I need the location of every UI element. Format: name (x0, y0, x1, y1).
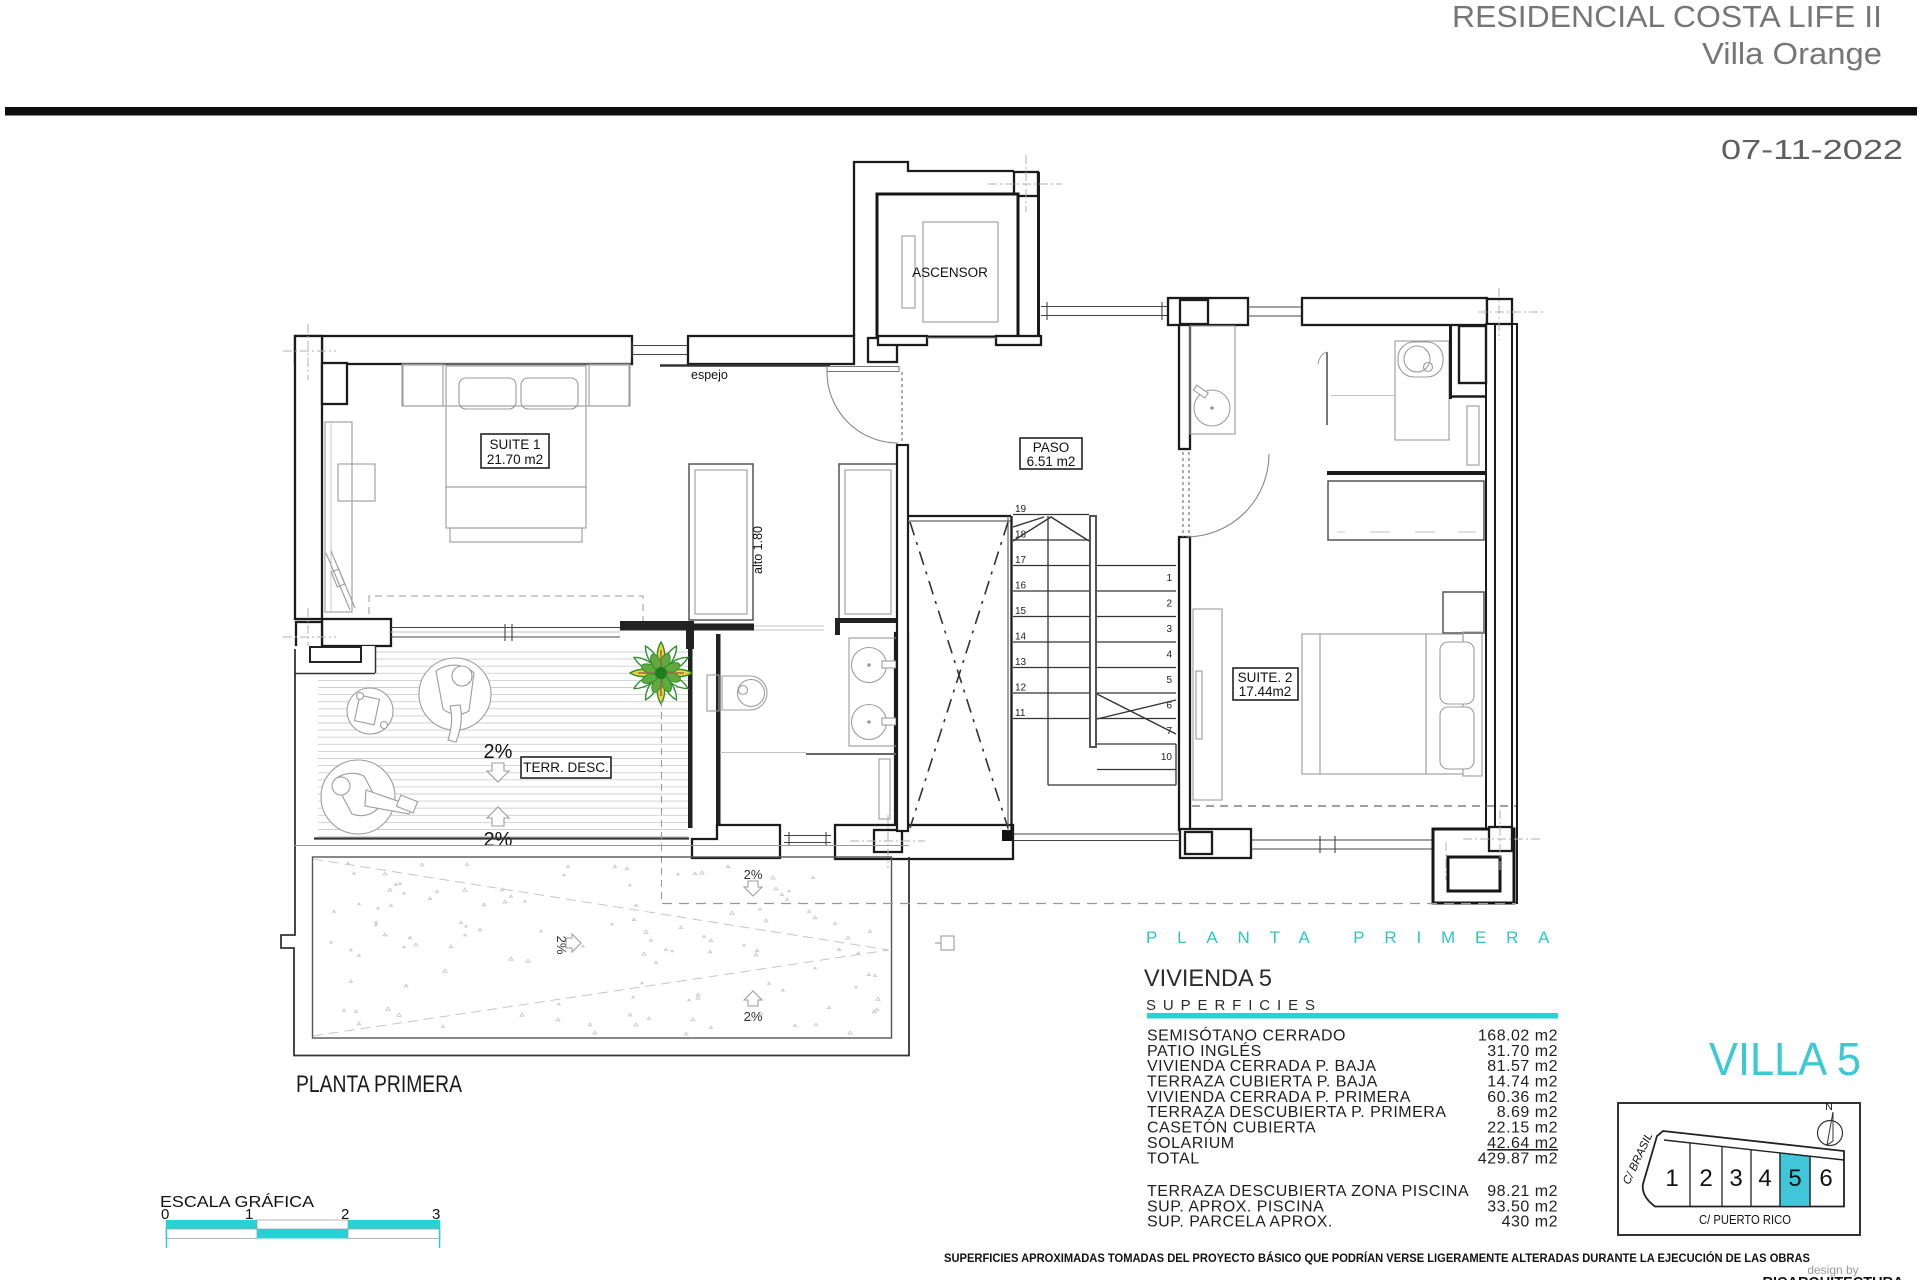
svg-text:3: 3 (1729, 1165, 1742, 1192)
svg-text:1: 1 (1665, 1165, 1678, 1192)
svg-text:ASCENSOR: ASCENSOR (912, 265, 988, 280)
svg-text:19: 19 (1015, 504, 1027, 515)
svg-text:11: 11 (1015, 708, 1026, 719)
svg-text:07-11-2022: 07-11-2022 (1721, 134, 1903, 165)
svg-text:17.44m2: 17.44m2 (1239, 684, 1292, 699)
svg-text:3: 3 (1166, 624, 1172, 635)
svg-text:2%: 2% (744, 867, 763, 882)
svg-text:SUITE 1: SUITE 1 (489, 437, 540, 452)
svg-text:ESCALA GRÁFICA: ESCALA GRÁFICA (160, 1194, 315, 1211)
svg-text:12: 12 (1015, 683, 1027, 694)
svg-text:PASO: PASO (1033, 440, 1070, 455)
svg-text:SUPERFICIES APROXIMADAS TOMADA: SUPERFICIES APROXIMADAS TOMADAS DEL PROY… (944, 1250, 1810, 1265)
svg-text:4: 4 (1758, 1165, 1771, 1192)
svg-text:PATIO INGLÉS: PATIO INGLÉS (1147, 1041, 1262, 1060)
svg-text:17: 17 (1015, 555, 1027, 566)
svg-text:4: 4 (1166, 650, 1172, 661)
svg-text:C/ PUERTO RICO: C/ PUERTO RICO (1699, 1213, 1791, 1227)
svg-text:PLANTA PRIMERA: PLANTA PRIMERA (296, 1071, 462, 1098)
svg-text:5: 5 (1166, 675, 1172, 686)
svg-text:429.87 m2: 429.87 m2 (1478, 1150, 1558, 1167)
svg-text:TOTAL: TOTAL (1147, 1150, 1200, 1167)
svg-text:Villa Orange: Villa Orange (1702, 36, 1882, 71)
svg-text:5: 5 (1788, 1165, 1801, 1192)
svg-text:RICARQUITECTURA: RICARQUITECTURA (1763, 1275, 1904, 1280)
svg-text:SUITE. 2: SUITE. 2 (1238, 670, 1293, 685)
svg-text:N: N (1825, 1101, 1833, 1113)
svg-text:2%: 2% (744, 1009, 763, 1024)
svg-text:espejo: espejo (691, 368, 728, 382)
svg-text:alto 1.80: alto 1.80 (751, 526, 765, 574)
svg-text:PLANTA PRIMERA: PLANTA PRIMERA (1146, 928, 1569, 947)
svg-text:6.51 m2: 6.51 m2 (1027, 454, 1076, 469)
svg-text:2: 2 (1699, 1165, 1712, 1192)
svg-text:SUP. PARCELA APROX.: SUP. PARCELA APROX. (1147, 1214, 1333, 1231)
svg-text:13: 13 (1015, 657, 1027, 668)
svg-text:SEMISÓTANO CERRADO: SEMISÓTANO CERRADO (1147, 1026, 1346, 1045)
svg-text:RESIDENCIAL COSTA LIFE II: RESIDENCIAL COSTA LIFE II (1452, 0, 1882, 34)
svg-text:21.70 m2: 21.70 m2 (487, 452, 543, 467)
svg-text:TERR. DESC.: TERR. DESC. (523, 760, 609, 775)
svg-text:VIVIENDA 5: VIVIENDA 5 (1144, 965, 1272, 992)
svg-text:1: 1 (1166, 573, 1172, 584)
svg-text:430 m2: 430 m2 (1502, 1214, 1558, 1231)
svg-text:6: 6 (1819, 1165, 1832, 1192)
svg-text:10: 10 (1161, 752, 1173, 763)
svg-text:SUPERFICIES: SUPERFICIES (1146, 997, 1322, 1014)
svg-text:VILLA 5: VILLA 5 (1709, 1033, 1861, 1085)
svg-text:2%: 2% (484, 829, 513, 851)
svg-text:CASETÓN CUBIERTA: CASETÓN CUBIERTA (1147, 1118, 1316, 1137)
svg-text:15: 15 (1015, 606, 1027, 617)
svg-text:2%: 2% (484, 741, 513, 763)
svg-text:2: 2 (1166, 599, 1172, 610)
svg-text:14: 14 (1015, 632, 1027, 643)
svg-text:16: 16 (1015, 581, 1027, 592)
